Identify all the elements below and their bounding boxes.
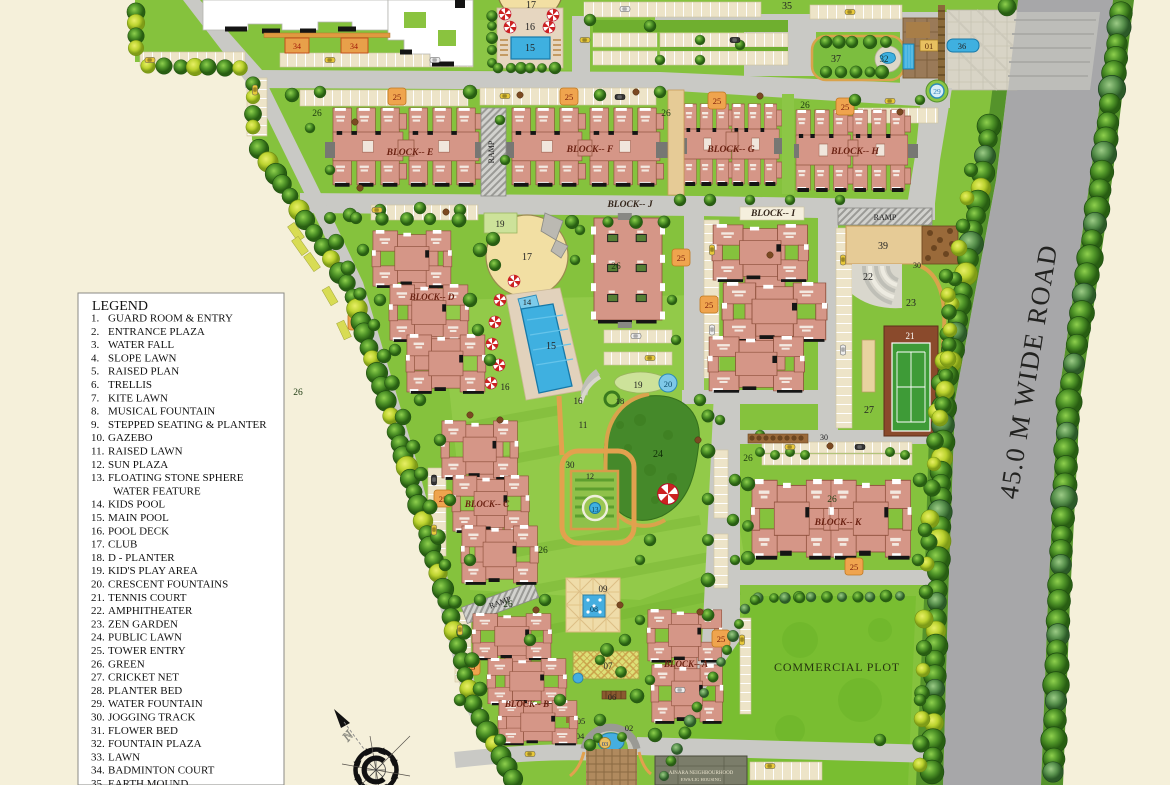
svg-text:28.: 28.	[91, 685, 105, 697]
svg-text:10.: 10.	[91, 432, 105, 444]
svg-text:ZEN GARDEN: ZEN GARDEN	[108, 618, 178, 630]
svg-text:25: 25	[677, 253, 686, 263]
svg-text:COMMERCIAL PLOT: COMMERCIAL PLOT	[774, 660, 900, 674]
svg-text:13.: 13.	[91, 472, 105, 484]
svg-text:30: 30	[913, 261, 921, 270]
svg-text:7.: 7.	[91, 392, 100, 404]
svg-text:WATER FEATURE: WATER FEATURE	[113, 485, 201, 497]
svg-text:BLOCK-- C: BLOCK-- C	[464, 499, 510, 509]
svg-text:22: 22	[863, 272, 873, 283]
svg-text:30: 30	[820, 433, 828, 442]
svg-text:17: 17	[526, 0, 536, 11]
svg-text:3.: 3.	[91, 339, 100, 351]
svg-text:PLANTER BED: PLANTER BED	[108, 685, 182, 697]
svg-text:08: 08	[590, 605, 598, 614]
svg-text:20.: 20.	[91, 579, 105, 591]
svg-text:GAZEBO: GAZEBO	[108, 432, 153, 444]
svg-text:36: 36	[958, 41, 967, 51]
svg-text:BLOCK-- G: BLOCK-- G	[706, 145, 754, 155]
svg-text:17.: 17.	[91, 539, 105, 551]
svg-text:33.: 33.	[91, 751, 105, 763]
svg-text:31.: 31.	[91, 725, 105, 737]
svg-text:TENNIS COURT: TENNIS COURT	[108, 592, 187, 604]
svg-text:ENTRANCE PLAZA: ENTRANCE PLAZA	[108, 326, 205, 338]
svg-text:23.: 23.	[91, 618, 105, 630]
svg-text:5.: 5.	[91, 366, 100, 378]
svg-text:KID'S PLAY AREA: KID'S PLAY AREA	[108, 565, 198, 577]
svg-text:25.: 25.	[91, 645, 105, 657]
svg-text:WATER FALL: WATER FALL	[108, 339, 174, 351]
svg-text:19: 19	[634, 380, 644, 390]
svg-text:26: 26	[827, 495, 837, 505]
svg-text:RAMP: RAMP	[487, 140, 496, 163]
svg-text:9.: 9.	[91, 419, 100, 431]
svg-text:GUARD ROOM & ENTRY: GUARD ROOM & ENTRY	[108, 313, 233, 325]
svg-text:26: 26	[743, 454, 753, 464]
svg-text:14.: 14.	[91, 499, 105, 511]
svg-text:GREEN: GREEN	[108, 658, 145, 670]
svg-text:26: 26	[661, 109, 671, 119]
svg-text:29: 29	[933, 87, 941, 96]
svg-text:CRICKET NET: CRICKET NET	[108, 672, 179, 684]
svg-text:01: 01	[925, 41, 934, 51]
svg-text:RAISED LAWN: RAISED LAWN	[108, 446, 183, 458]
svg-text:TOWER ENTRY: TOWER ENTRY	[108, 645, 186, 657]
svg-text:1.: 1.	[91, 313, 100, 325]
svg-text:34.: 34.	[91, 765, 105, 777]
svg-text:LAWN: LAWN	[108, 751, 140, 763]
svg-text:BLOCK-- A: BLOCK-- A	[663, 659, 708, 669]
svg-text:11: 11	[579, 420, 588, 430]
svg-text:25: 25	[565, 92, 574, 102]
svg-text:11.: 11.	[91, 446, 105, 458]
svg-text:06: 06	[608, 692, 617, 702]
svg-text:POOL DECK: POOL DECK	[108, 525, 169, 537]
svg-text:EARTH MOUND: EARTH MOUND	[108, 778, 188, 785]
svg-text:RAMP: RAMP	[874, 213, 897, 222]
svg-text:26: 26	[503, 600, 513, 610]
svg-text:02: 02	[625, 723, 634, 733]
svg-text:09: 09	[599, 584, 609, 594]
svg-text:BLOCK-- J: BLOCK-- J	[606, 200, 652, 210]
svg-text:RAISED PLAN: RAISED PLAN	[108, 366, 179, 378]
svg-text:4.: 4.	[91, 352, 100, 364]
svg-text:37: 37	[831, 54, 841, 65]
svg-text:25: 25	[850, 562, 859, 572]
svg-text:BLOCK-- E: BLOCK-- E	[386, 148, 434, 158]
svg-text:BADMINTON COURT: BADMINTON COURT	[108, 765, 215, 777]
svg-text:BLOCK-- H: BLOCK-- H	[830, 147, 879, 157]
svg-text:23: 23	[906, 298, 916, 309]
svg-text:BLOCK-- K: BLOCK-- K	[814, 518, 862, 528]
svg-text:13: 13	[592, 506, 600, 514]
svg-text:SLOPE LAWN: SLOPE LAWN	[108, 352, 177, 364]
svg-text:15.: 15.	[91, 512, 105, 524]
svg-text:STEPPED SEATING & PLANTER: STEPPED SEATING & PLANTER	[108, 419, 267, 431]
svg-text:39: 39	[878, 241, 888, 252]
svg-text:19.: 19.	[91, 565, 105, 577]
svg-text:21.: 21.	[91, 592, 105, 604]
svg-text:FLOATING STONE SPHERE: FLOATING STONE SPHERE	[108, 472, 244, 484]
svg-text:25: 25	[717, 634, 726, 644]
svg-text:22.: 22.	[91, 605, 105, 617]
svg-text:15: 15	[546, 341, 556, 352]
svg-text:KIDS POOL: KIDS POOL	[108, 499, 165, 511]
svg-text:18.: 18.	[91, 552, 105, 564]
svg-text:21: 21	[906, 331, 915, 341]
svg-text:24.: 24.	[91, 632, 105, 644]
svg-text:26: 26	[312, 109, 322, 119]
svg-text:30: 30	[566, 460, 576, 470]
svg-text:19: 19	[496, 219, 506, 229]
svg-text:BLOCK-- I: BLOCK-- I	[750, 209, 795, 219]
svg-text:03: 03	[602, 741, 609, 748]
svg-text:MUSICAL FOUNTAIN: MUSICAL FOUNTAIN	[108, 406, 215, 418]
svg-text:26: 26	[611, 262, 621, 272]
svg-text:AMPHITHEATER: AMPHITHEATER	[108, 605, 193, 617]
svg-text:WATER FOUNTAIN: WATER FOUNTAIN	[108, 698, 203, 710]
svg-text:16.: 16.	[91, 525, 105, 537]
svg-text:34: 34	[350, 42, 358, 51]
svg-text:24: 24	[653, 449, 663, 460]
svg-text:FOUNTAIN PLAZA: FOUNTAIN PLAZA	[108, 738, 202, 750]
svg-text:17: 17	[522, 252, 532, 263]
svg-text:35.: 35.	[91, 778, 105, 785]
svg-text:26.: 26.	[91, 658, 105, 670]
svg-text:EWS/LIG HOUSING: EWS/LIG HOUSING	[681, 777, 722, 782]
svg-text:12: 12	[586, 472, 594, 481]
svg-text:CRESCENT FOUNTAINS: CRESCENT FOUNTAINS	[108, 579, 228, 591]
svg-text:25: 25	[841, 102, 850, 112]
svg-text:26: 26	[800, 101, 810, 111]
svg-text:18: 18	[616, 396, 625, 406]
svg-text:14: 14	[523, 297, 532, 307]
svg-text:TRELLIS: TRELLIS	[108, 379, 152, 391]
svg-text:16: 16	[525, 22, 535, 33]
svg-text:35: 35	[782, 1, 792, 12]
svg-text:30.: 30.	[91, 712, 105, 724]
svg-text:16: 16	[574, 396, 584, 406]
svg-text:16: 16	[501, 382, 511, 392]
svg-text:26: 26	[538, 546, 548, 556]
svg-text:6.: 6.	[91, 379, 100, 391]
svg-text:26: 26	[293, 388, 303, 398]
svg-text:AJNARA NEIGHBOURHOOD: AJNARA NEIGHBOURHOOD	[669, 771, 734, 776]
svg-text:D - PLANTER: D - PLANTER	[108, 552, 175, 564]
svg-text:MAIN POOL: MAIN POOL	[108, 512, 169, 524]
svg-text:8.: 8.	[91, 406, 100, 418]
svg-text:BLOCK-- F: BLOCK-- F	[566, 145, 614, 155]
svg-text:25: 25	[713, 96, 722, 106]
svg-text:29.: 29.	[91, 698, 105, 710]
svg-text:32.: 32.	[91, 738, 105, 750]
svg-text:FLOWER BED: FLOWER BED	[108, 725, 178, 737]
svg-text:07: 07	[604, 661, 614, 671]
svg-text:25: 25	[705, 300, 714, 310]
svg-text:SUN PLAZA: SUN PLAZA	[108, 459, 168, 471]
svg-text:BLOCK-- D: BLOCK-- D	[409, 292, 455, 302]
svg-text:CLUB: CLUB	[108, 539, 137, 551]
svg-text:15: 15	[525, 43, 535, 54]
svg-text:BLOCK-- B: BLOCK-- B	[504, 699, 549, 709]
svg-text:2.: 2.	[91, 326, 100, 338]
svg-text:KITE LAWN: KITE LAWN	[108, 392, 168, 404]
svg-text:25: 25	[393, 92, 402, 102]
svg-text:20: 20	[664, 379, 673, 389]
svg-text:32: 32	[880, 54, 889, 64]
svg-text:JOGGING TRACK: JOGGING TRACK	[108, 712, 196, 724]
svg-text:27.: 27.	[91, 672, 105, 684]
svg-text:27: 27	[864, 405, 874, 416]
svg-text:12.: 12.	[91, 459, 105, 471]
svg-text:34: 34	[293, 42, 301, 51]
svg-text:PUBLIC LAWN: PUBLIC LAWN	[108, 632, 182, 644]
